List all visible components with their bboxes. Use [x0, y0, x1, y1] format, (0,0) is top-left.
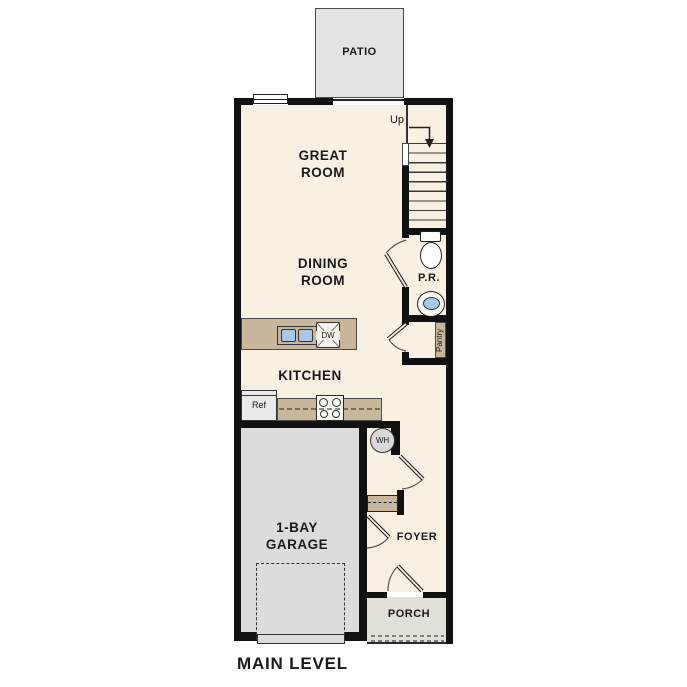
wall-right [446, 98, 453, 644]
room-label-garage: 1-BAY GARAGE [237, 519, 357, 553]
stove-burner [332, 398, 341, 407]
room-label-kitchen: KITCHEN [250, 367, 370, 384]
room-label-foyer: FOYER [387, 530, 447, 544]
wall-garage-right [359, 421, 367, 641]
stairs [409, 143, 446, 229]
page-title: MAIN LEVEL [237, 654, 457, 674]
pr-sink-basin [423, 297, 440, 310]
toilet-tank [420, 231, 441, 242]
wall-pr-bottom [402, 315, 446, 322]
stairs-up-label: Up [380, 114, 404, 126]
stair-side-opening [402, 143, 409, 166]
window-pane-line [254, 99, 287, 100]
room-label-powder-room: P.R. [409, 271, 449, 285]
wall-porch-a [367, 592, 387, 598]
wall-top-c [404, 98, 448, 105]
wall-stair-thin [406, 105, 408, 143]
garage-line2: GARAGE [237, 536, 357, 553]
island-sink-basin-left [281, 329, 296, 342]
wall-left [234, 98, 241, 641]
wall-garage-kitchen [234, 421, 400, 428]
stove-burner [319, 398, 328, 407]
pantry-label: Pantry [435, 324, 446, 357]
wall-top-b [288, 98, 333, 105]
room-label-great-room: GREAT ROOM [253, 147, 393, 181]
floor-plan: PATIO GREAT ROOM DINING ROOM KITCHEN 1-B… [0, 0, 687, 687]
refrigerator-label: Ref [243, 400, 275, 410]
room-label-porch: PORCH [377, 607, 441, 621]
room-label-dining-room: DINING ROOM [253, 255, 393, 289]
wall-porch-b [423, 592, 446, 598]
stove-burner [320, 410, 328, 418]
garage-door [257, 634, 345, 644]
window [253, 94, 288, 104]
great-room-line1: GREAT [253, 147, 393, 164]
dining-room-line1: DINING [253, 255, 393, 272]
garage-line1: 1-BAY [237, 519, 357, 536]
garage-door-path [256, 563, 345, 640]
dining-room-line2: ROOM [253, 272, 393, 289]
coat-closet-shelf [367, 495, 398, 512]
great-room-line2: ROOM [253, 164, 393, 181]
toilet-bowl [420, 242, 442, 269]
wall-coat-closet-right [397, 490, 404, 515]
stove-burner [332, 410, 340, 418]
dishwasher-label: DW [316, 331, 340, 340]
wall-garage-bottom-a [234, 632, 257, 641]
wall-pantry-bottom [402, 358, 446, 365]
refrigerator-door-line [242, 395, 276, 396]
island-sink-basin-right [298, 329, 313, 342]
room-label-patio: PATIO [315, 45, 404, 59]
shelf-dash-line [368, 502, 397, 503]
wall-garage-bottom-b [345, 632, 367, 641]
water-heater-label: WH [370, 436, 395, 445]
